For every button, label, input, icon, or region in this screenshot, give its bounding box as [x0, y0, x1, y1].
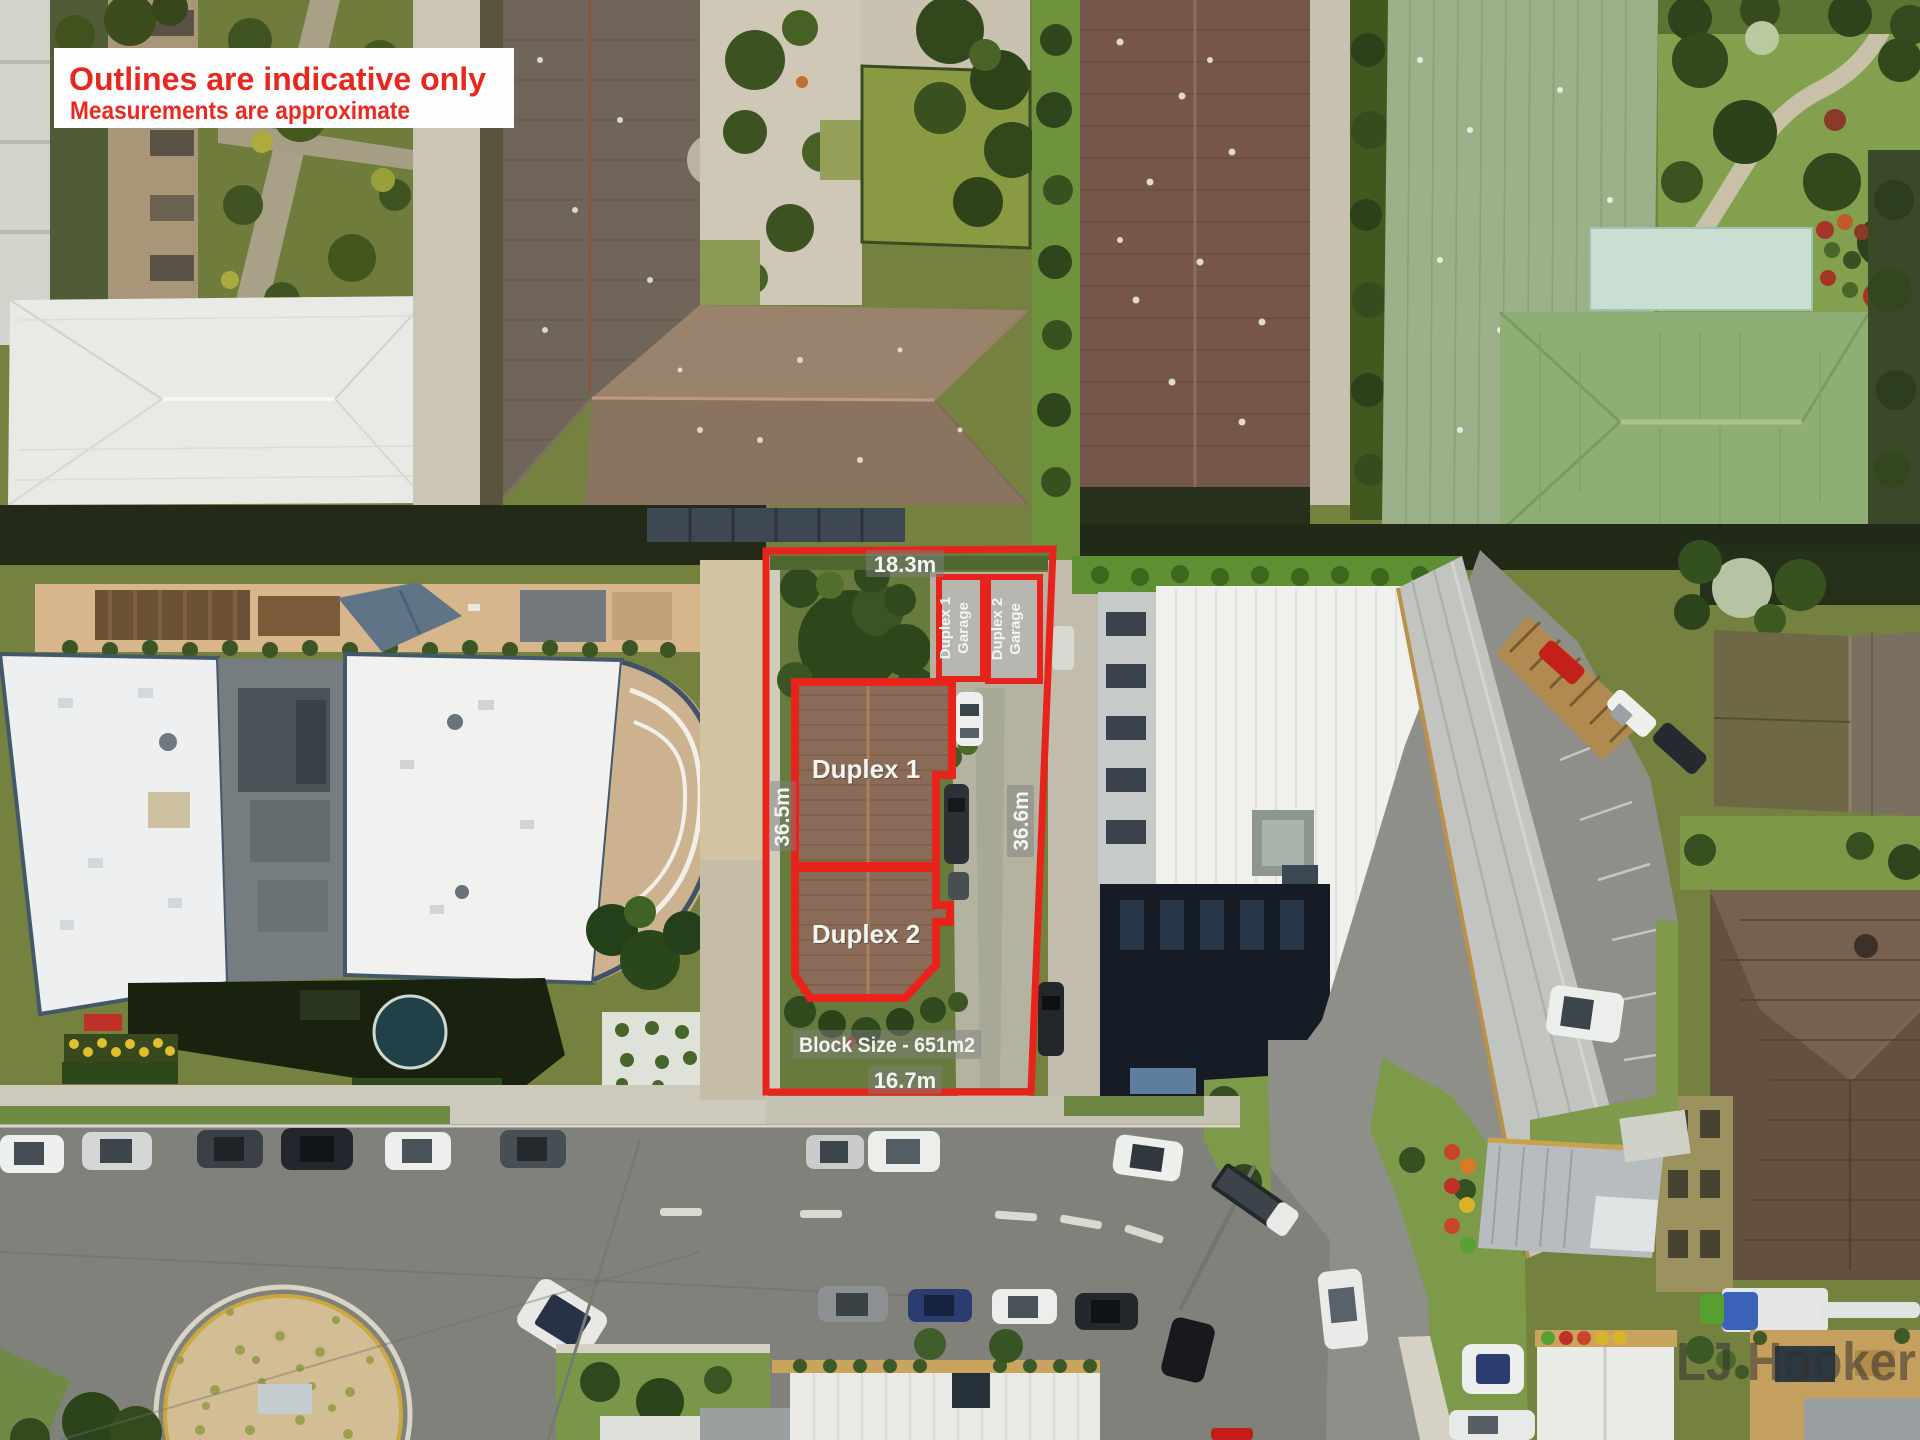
svg-text:LJ Hooker: LJ Hooker — [1676, 1332, 1916, 1392]
svg-text:Duplex 1: Duplex 1 — [937, 597, 954, 660]
svg-text:Block Size - 651m2: Block Size - 651m2 — [799, 1034, 975, 1057]
svg-text:Duplex 2: Duplex 2 — [812, 919, 920, 949]
svg-text:Duplex 1: Duplex 1 — [812, 754, 920, 784]
svg-text:Garage: Garage — [1007, 603, 1024, 655]
svg-text:Duplex 2: Duplex 2 — [989, 598, 1006, 661]
svg-text:36.5m: 36.5m — [771, 787, 794, 847]
svg-text:36.6m: 36.6m — [1010, 791, 1033, 851]
svg-text:18.3m: 18.3m — [874, 552, 936, 577]
svg-text:Outlines are indicative only: Outlines are indicative only — [69, 61, 486, 97]
svg-text:Garage: Garage — [955, 602, 972, 654]
svg-text:16.7m: 16.7m — [874, 1068, 936, 1093]
svg-text:Measurements are approximate: Measurements are approximate — [70, 97, 410, 125]
